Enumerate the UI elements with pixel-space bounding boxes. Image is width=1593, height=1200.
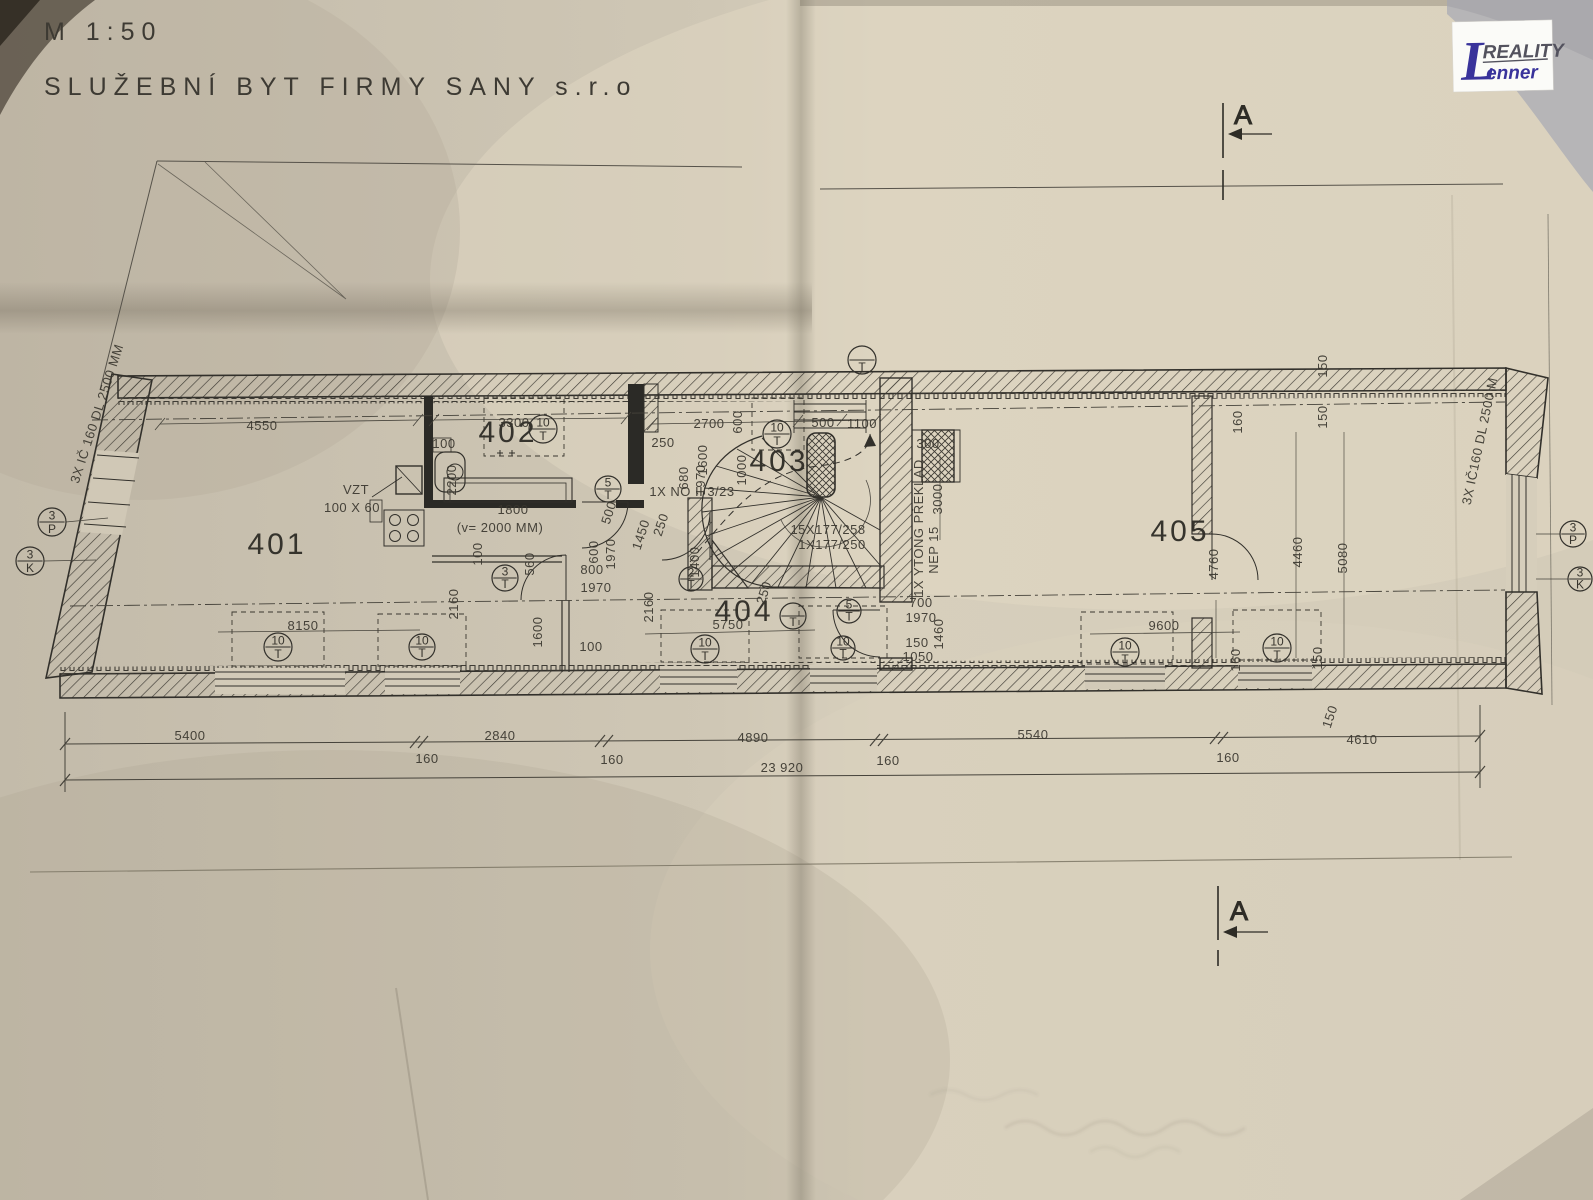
dimension-label: 1460: [931, 619, 946, 650]
dimension-label: 1970: [603, 539, 618, 570]
dimension-label: 2700: [694, 416, 725, 431]
dimension-label: 9600: [1149, 618, 1180, 633]
dimension-label: 160: [600, 752, 623, 767]
symbol-bottom-text: P: [48, 522, 56, 536]
dimension-label: 5080: [1335, 543, 1350, 574]
symbol-bottom-text: T: [1121, 652, 1129, 666]
symbol-bottom-text: K: [26, 561, 34, 575]
symbol-top-text: 10: [1118, 639, 1132, 653]
symbol-bottom-text: T: [539, 429, 547, 443]
section-label-top: A: [1234, 100, 1252, 130]
room-label: 403: [749, 445, 808, 478]
dimension-label: VZT: [343, 482, 369, 497]
dimension-label: 150: [905, 635, 928, 650]
dimension-label: 4550: [247, 418, 278, 433]
dimension-label: 100: [432, 436, 455, 451]
dimension-label: 5540: [1018, 727, 1049, 742]
dimension-label: 1970: [581, 580, 612, 595]
dimension-label: 3300: [499, 415, 530, 430]
symbol-bottom-text: T: [1273, 648, 1281, 662]
reference-symbol: 10T: [409, 634, 435, 661]
dimension-label: 3000: [930, 484, 945, 515]
dimension-label: 100 X 60: [324, 500, 380, 515]
dimension-label: 2840: [485, 728, 516, 743]
stair-newel: [807, 433, 835, 497]
room-label: 405: [1150, 515, 1209, 548]
dimension-label: 5400: [175, 728, 206, 743]
symbol-bottom-text: T: [858, 360, 866, 374]
dimension-label: 1100: [847, 416, 877, 431]
reference-symbol: 10T: [1263, 634, 1291, 662]
dimension-label: 2160: [446, 589, 461, 620]
dimension-label: 4890: [738, 730, 769, 745]
dimension-label: 150: [1315, 405, 1330, 428]
symbol-bottom-text: T: [501, 577, 509, 591]
dimension-label: 800: [580, 562, 603, 577]
dimension-label: 560: [522, 552, 537, 575]
dimension-label: 600: [586, 540, 601, 563]
dimension-label: 23 920: [761, 760, 804, 775]
dimension-label: 1970: [693, 465, 708, 496]
symbol-top-text: 10: [770, 421, 784, 435]
dimension-label: 4760: [1206, 549, 1221, 580]
dimension-label: 300: [916, 436, 939, 451]
symbol-top-text: 10: [271, 634, 285, 648]
symbol-bottom-text: T: [604, 488, 612, 502]
reference-symbol: 3K: [16, 547, 44, 575]
dimension-label: 160: [876, 753, 899, 768]
dimension-label: 1X177/250: [798, 537, 865, 552]
dimension-label: 600: [730, 410, 745, 433]
symbol-bottom-text: T: [701, 649, 709, 663]
symbol-bottom-text: T: [839, 646, 847, 660]
paper-background: [0, 0, 1593, 1200]
symbol-top-text: 3: [49, 509, 56, 523]
dimension-label: 160: [1216, 750, 1239, 765]
symbol-top-text: 10: [536, 416, 550, 430]
drawing-title: SLUŽEBNÍ BYT FIRMY SANY s.r.o: [44, 72, 637, 101]
dimension-label: (v= 2000 MM): [457, 520, 544, 535]
symbol-bottom-text: T: [418, 646, 426, 660]
symbol-bottom-text: T: [274, 647, 282, 661]
dimension-label: 8150: [288, 618, 319, 633]
dimension-label: 4610: [1347, 732, 1378, 747]
symbol-bottom-text: T: [773, 434, 781, 448]
dimension-label: 250: [651, 435, 674, 450]
reference-symbol: 10T: [691, 635, 719, 663]
symbol-top-text: 10: [1270, 635, 1284, 649]
symbol-bottom-text: P: [1569, 533, 1577, 547]
reference-symbol: 10T: [264, 633, 292, 661]
reference-symbol: 3T: [492, 565, 518, 592]
reference-symbol: 10T: [763, 420, 791, 448]
reference-symbol: 5T: [595, 476, 621, 503]
reference-symbol: 3P: [38, 508, 66, 536]
dimension-label: 1X NO II 3/23: [649, 484, 734, 499]
dimension-label: 4460: [1290, 537, 1305, 568]
symbol-bottom-text: T: [789, 615, 797, 629]
dimension-label: 1050: [903, 649, 934, 664]
dimension-label: 150: [1315, 354, 1330, 377]
dimension-label: 5750: [713, 617, 744, 632]
symbol-top-text: 10: [698, 636, 712, 650]
floor-plan-photo: A A M 1:50 SLUŽEBNÍ BYT FIRMY SANY s.r.o…: [0, 0, 1593, 1200]
dimension-label: 500: [811, 415, 834, 430]
dimension-label: 680: [676, 466, 691, 489]
symbol-bottom-text: T: [687, 577, 695, 591]
logo: L REALITY enner: [1452, 20, 1567, 93]
dimension-label: 100: [470, 542, 485, 565]
dimension-label: 1600: [530, 617, 545, 648]
symbol-bottom-text: K: [1576, 577, 1584, 591]
dimension-label: NEP 15: [926, 526, 941, 574]
reference-symbol: 10T: [1111, 638, 1139, 666]
dimension-label: 160: [415, 751, 438, 766]
dimension-label: 160: [1228, 648, 1243, 671]
reference-symbol: 10T: [529, 415, 557, 443]
dimension-label: 2160: [641, 592, 656, 623]
dimension-label: 15X177/258: [790, 522, 865, 537]
dimension-label: 1800: [498, 502, 529, 517]
scale-label: M 1:50: [44, 18, 162, 46]
dimension-label: 150: [1310, 646, 1325, 669]
dimension-label: 2200: [444, 465, 459, 496]
dimension-label: 160: [1230, 410, 1245, 433]
symbol-top-text: 3: [27, 548, 34, 562]
dimension-label: 1X YTONG PŘEKLAD: [911, 459, 926, 597]
room-label: 401: [247, 528, 306, 561]
logo-word-bottom: enner: [1486, 62, 1540, 84]
section-label-bottom: A: [1230, 896, 1248, 926]
reference-symbol: 3P: [1560, 521, 1586, 548]
dimension-label: 100: [579, 639, 602, 654]
symbol-bottom-text: T: [845, 609, 853, 623]
dimension-label: 1000: [734, 455, 749, 486]
